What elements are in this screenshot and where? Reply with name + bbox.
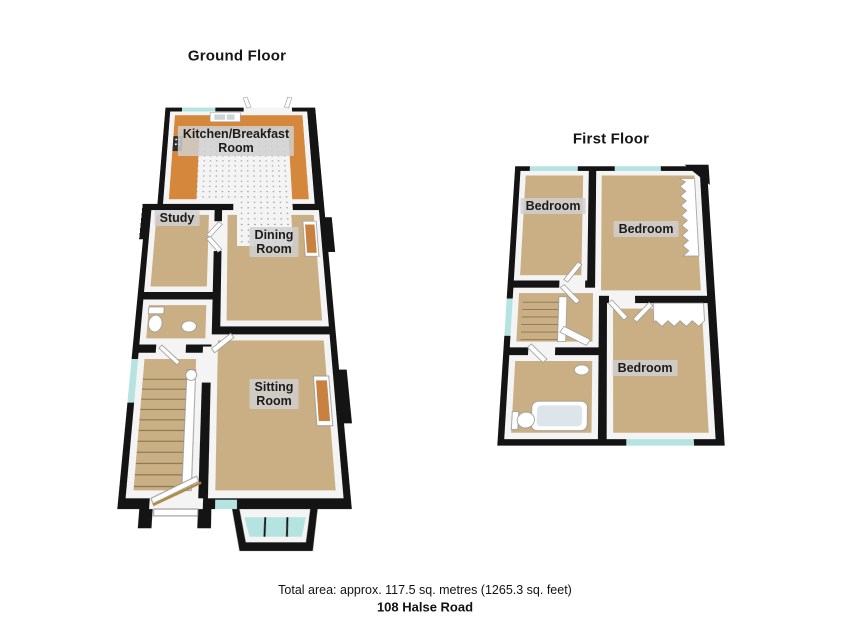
porch-step [138, 509, 153, 528]
kitchen-dining-opening [233, 199, 295, 246]
total-area-text: Total area: approx. 117.5 sq. metres (12… [278, 583, 572, 597]
dining-fireplace-icon [303, 221, 319, 256]
first-floor-title: First Floor [573, 131, 649, 148]
newel-post-icon [185, 370, 196, 381]
bedroom-middle-window-icon [615, 166, 661, 171]
basin-icon [181, 321, 196, 332]
french-doors-icon [243, 97, 293, 111]
basin-icon [574, 365, 589, 375]
study-room [144, 210, 215, 292]
stove-icon [172, 136, 183, 151]
first-floor-plan [490, 160, 732, 454]
ground-floor-title: Ground Floor [188, 48, 286, 65]
kitchen-window-icon [182, 108, 216, 112]
sink-icon [210, 113, 240, 122]
bedroom-front-window-icon [530, 166, 578, 171]
porch-step [197, 509, 211, 528]
bedroom-rear-window-icon [626, 439, 694, 445]
sitting-window-icon [215, 500, 237, 509]
bay-window-icon [239, 509, 312, 542]
address-text: 108 Halse Road [377, 600, 473, 615]
bath-icon [531, 401, 588, 430]
kitchen-room [163, 111, 315, 203]
ground-floor-plan [106, 95, 368, 571]
